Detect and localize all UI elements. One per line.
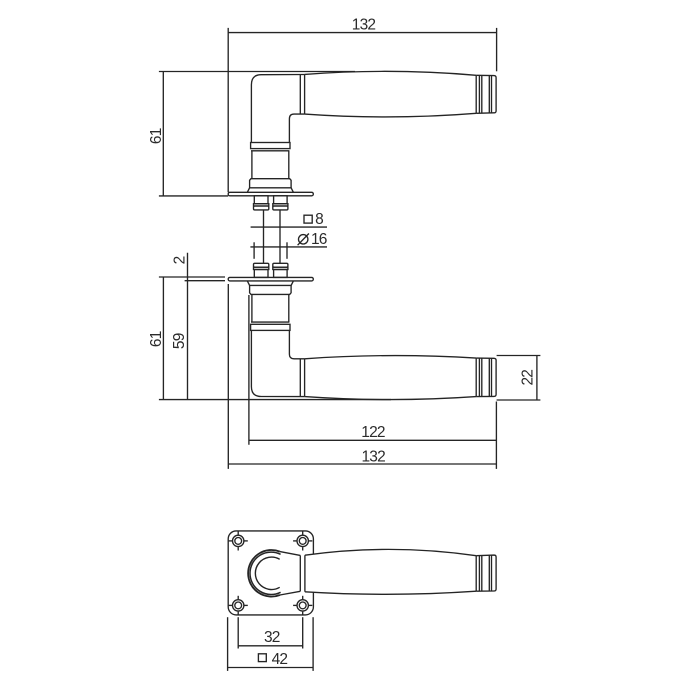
svg-text:59: 59 bbox=[171, 333, 188, 349]
svg-text:42: 42 bbox=[272, 651, 288, 668]
svg-text:132: 132 bbox=[361, 448, 385, 465]
svg-text:122: 122 bbox=[361, 424, 385, 441]
svg-text:2: 2 bbox=[172, 256, 189, 264]
svg-text:32: 32 bbox=[264, 629, 280, 646]
svg-text:22: 22 bbox=[520, 370, 537, 386]
svg-text:61: 61 bbox=[148, 331, 165, 347]
svg-text:132: 132 bbox=[352, 16, 376, 33]
svg-text:8: 8 bbox=[315, 211, 323, 228]
svg-text:61: 61 bbox=[148, 128, 165, 144]
svg-text:16: 16 bbox=[311, 231, 327, 248]
